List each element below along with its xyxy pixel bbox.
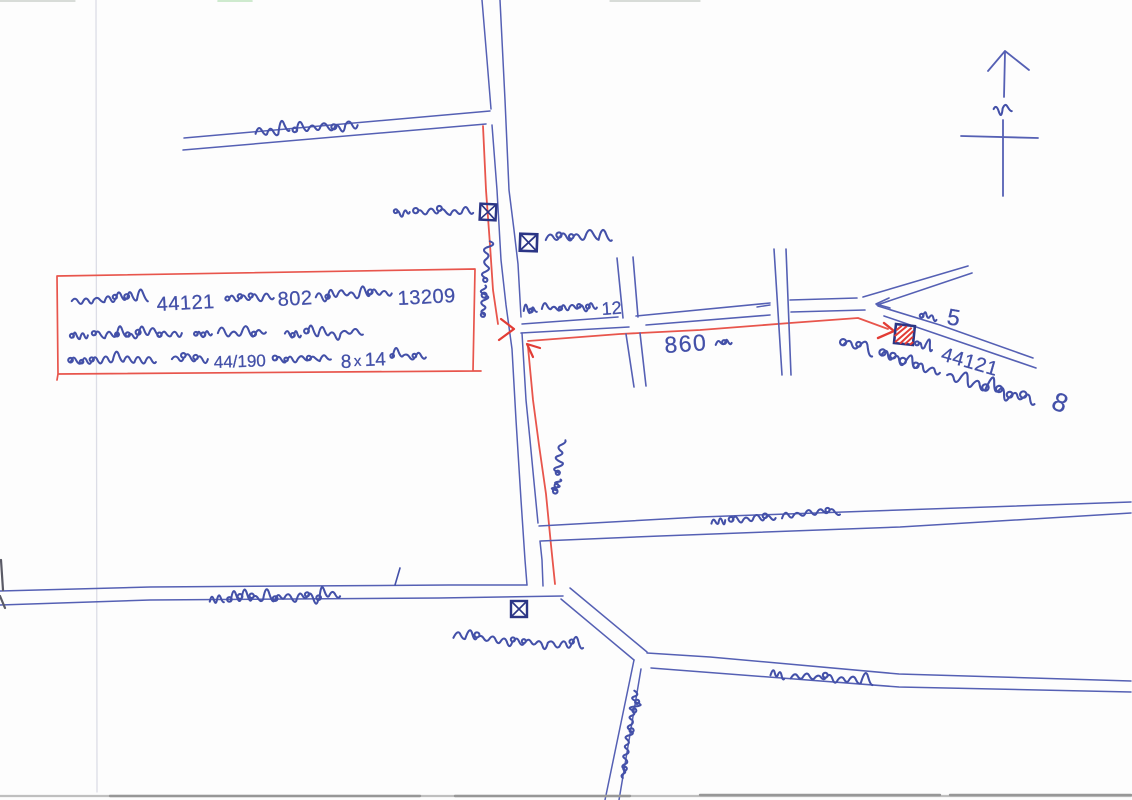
svg-text:8: 8 xyxy=(340,352,351,373)
svg-text:14: 14 xyxy=(364,349,386,371)
svg-text:802: 802 xyxy=(277,287,313,311)
svg-text:x: x xyxy=(354,353,363,370)
svg-text:860: 860 xyxy=(664,329,709,358)
svg-text:12: 12 xyxy=(601,298,622,319)
svg-text:13209: 13209 xyxy=(397,285,456,310)
svg-text:44121: 44121 xyxy=(156,291,215,316)
svg-text:5: 5 xyxy=(945,303,962,331)
svg-text:8: 8 xyxy=(1048,386,1073,419)
svg-text:44/190: 44/190 xyxy=(213,351,266,372)
